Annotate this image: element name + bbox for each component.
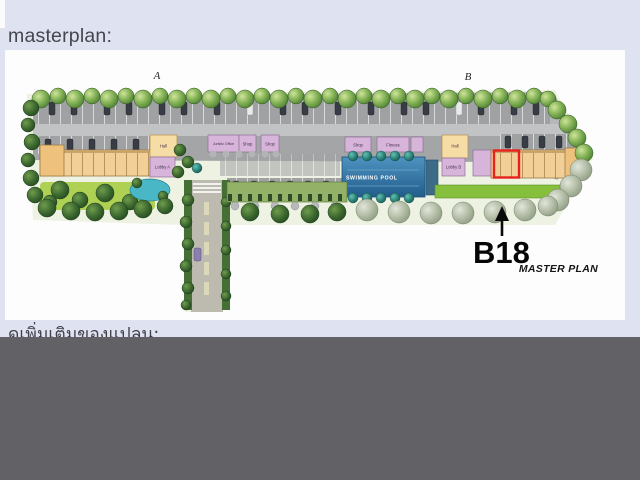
shop-b-label: Shop xyxy=(353,143,363,148)
small-facility-block xyxy=(411,137,423,152)
entrance-driveway xyxy=(180,180,231,312)
building-a-label: A xyxy=(153,70,161,82)
bottom-overlay xyxy=(0,337,640,480)
section-heading-masterplan: masterplan: xyxy=(8,25,112,48)
hall-a-label: Hall xyxy=(160,144,167,149)
lobby-b-label: Lobby B xyxy=(446,165,462,170)
masterplan-image: Juristic Office Shop Shop Hall Lobby A S… xyxy=(5,50,625,320)
masterplan-panel: Juristic Office Shop Shop Hall Lobby A S… xyxy=(5,50,625,320)
fitness-label: Fitness xyxy=(386,143,400,148)
car-on-driveway xyxy=(194,248,201,261)
page-corner-sliver xyxy=(0,0,5,28)
building-b-label: B xyxy=(465,71,472,83)
shop-label: Shop xyxy=(265,142,275,147)
small-facility-block xyxy=(473,150,491,176)
shop-label: Shop xyxy=(243,142,253,147)
juristic-office-label: Juristic Office xyxy=(213,142,235,146)
masterplan-caption: MASTER PLAN xyxy=(519,263,598,275)
hall-b-label: Hall xyxy=(451,144,458,149)
lobby-a-label: Lobby A xyxy=(155,165,170,170)
south-hedge xyxy=(435,185,560,198)
swimming-pool-label: SWIMMING POOL xyxy=(346,176,398,182)
